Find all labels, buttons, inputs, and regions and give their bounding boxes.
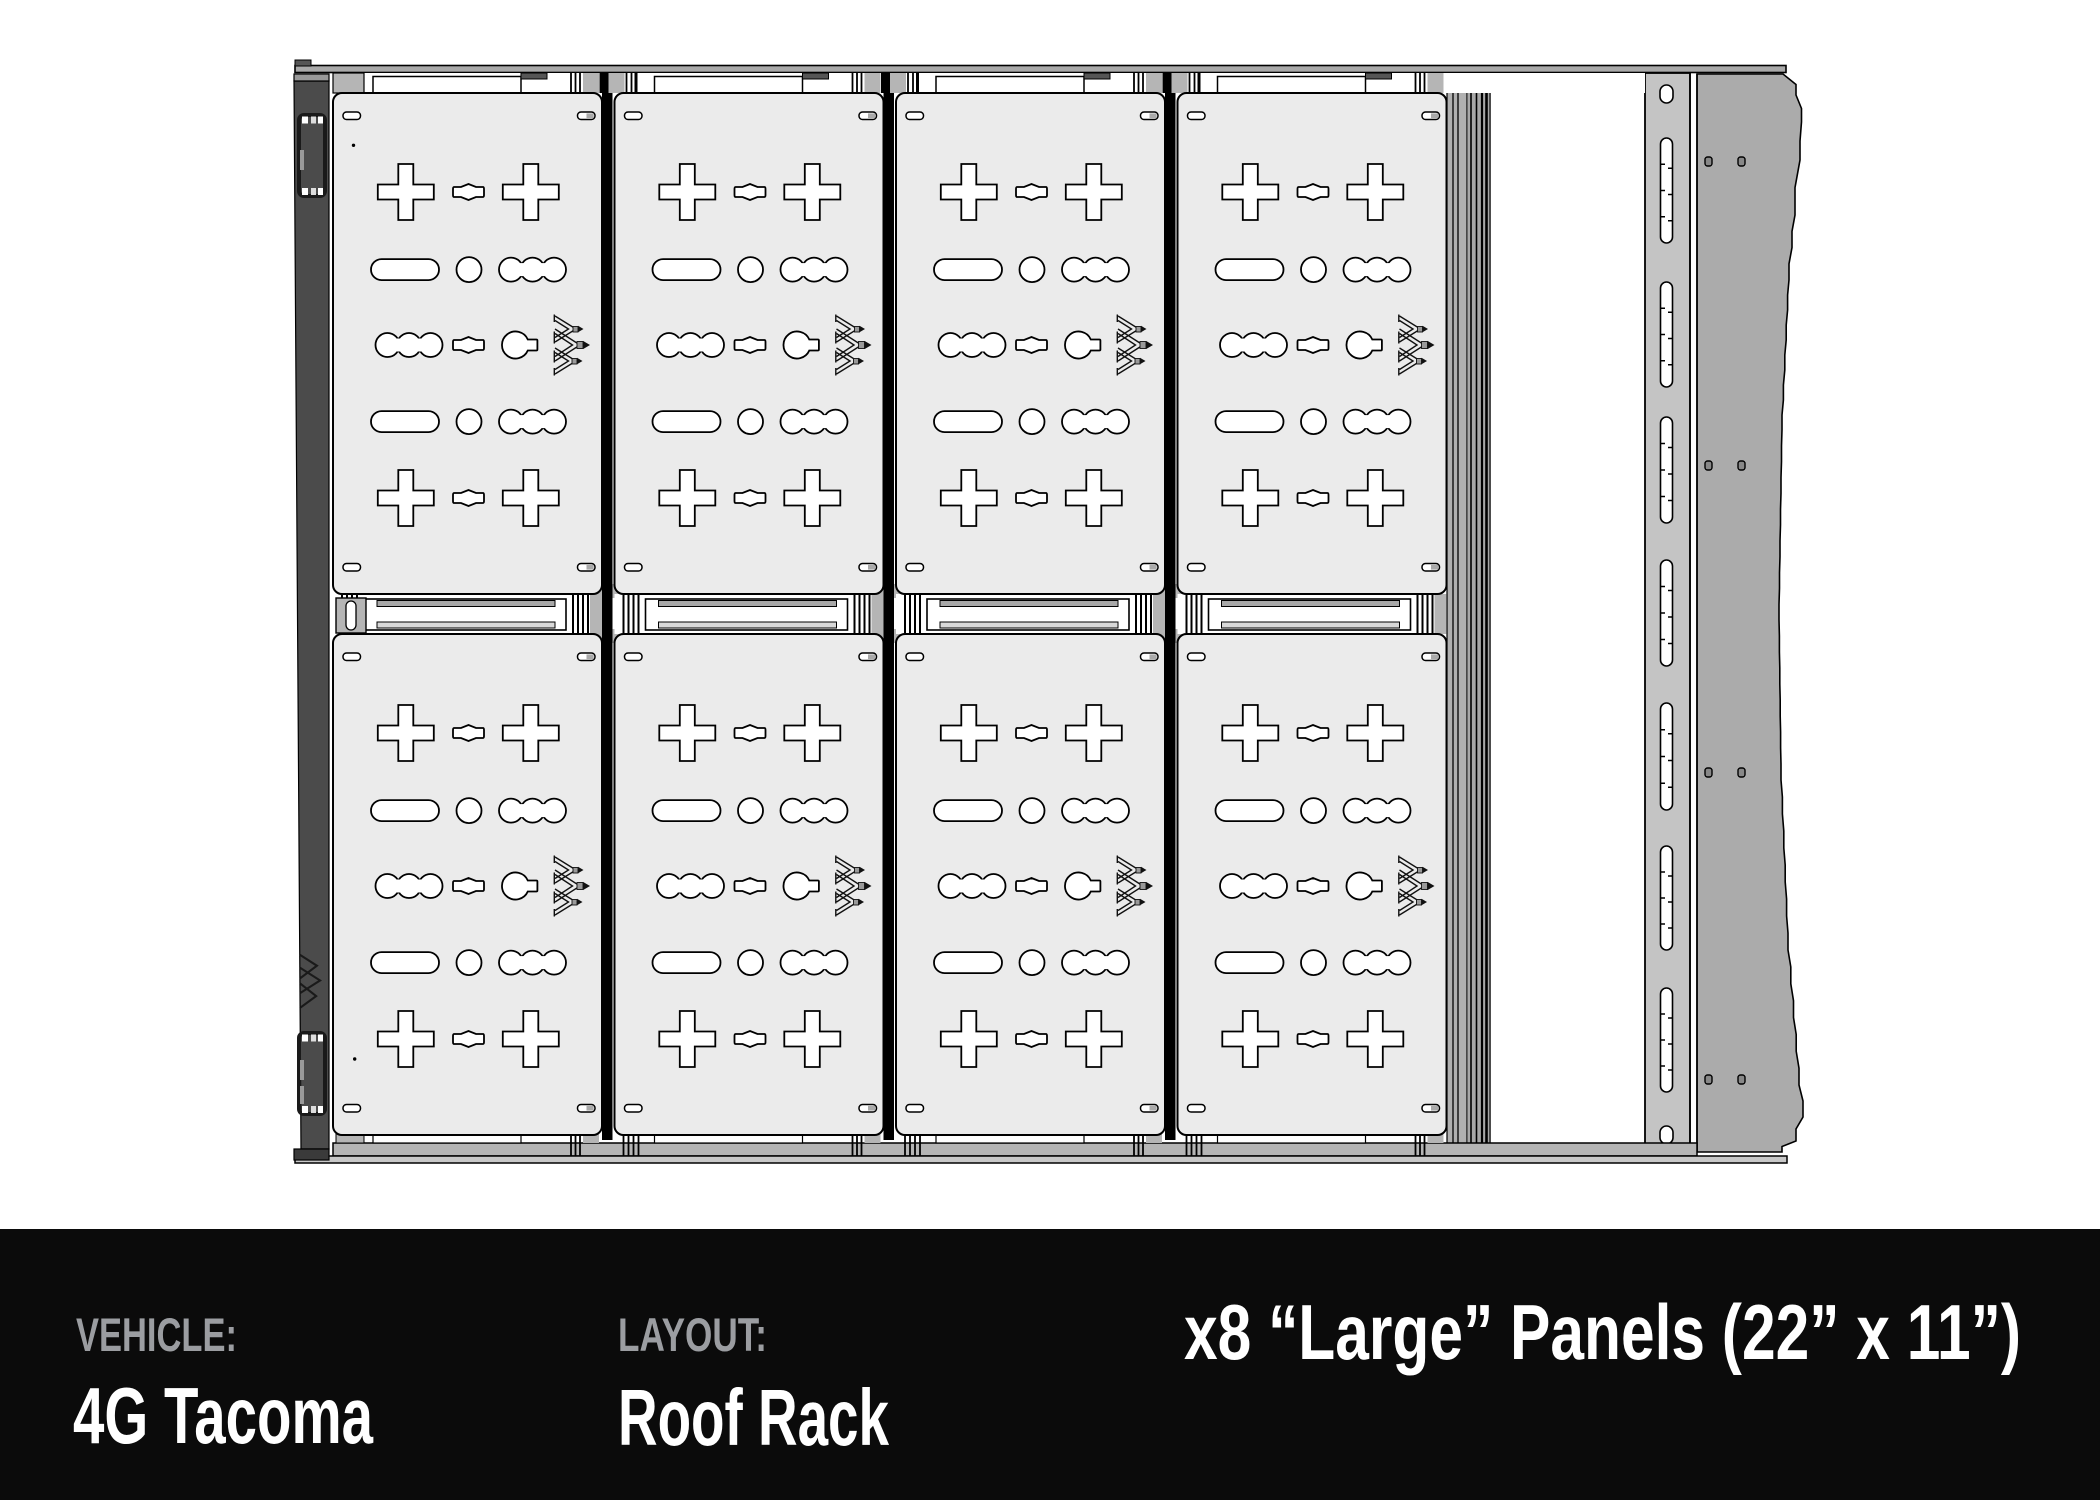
svg-text:Roof Rack: Roof Rack — [618, 1373, 889, 1462]
svg-text:VEHICLE:: VEHICLE: — [76, 1308, 237, 1361]
svg-text:4G Tacoma: 4G Tacoma — [73, 1371, 373, 1460]
svg-text:x8 “Large” Panels (22” x 11”): x8 “Large” Panels (22” x 11”) — [1184, 1288, 2021, 1376]
svg-text:LAYOUT:: LAYOUT: — [618, 1308, 767, 1361]
